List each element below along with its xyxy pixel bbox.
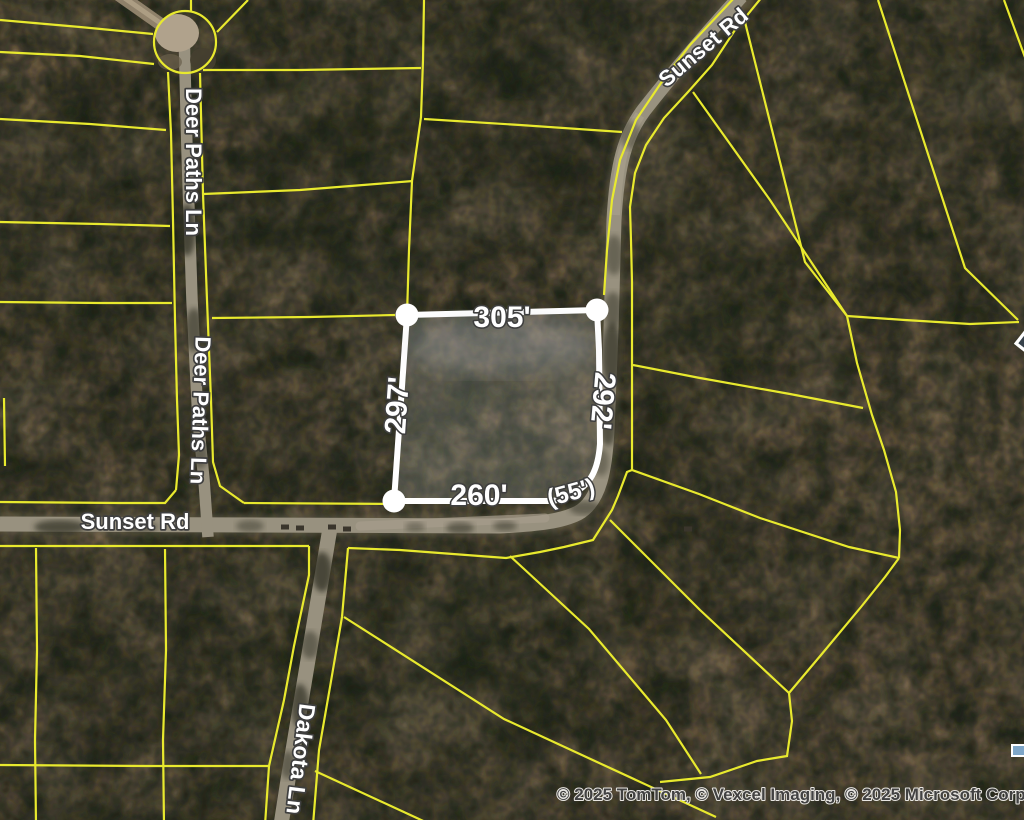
svg-text:297': 297'	[379, 376, 416, 435]
svg-text:Deer Paths Ln: Deer Paths Ln	[185, 336, 215, 485]
svg-text:292': 292'	[584, 371, 622, 431]
svg-text:Sunset Rd: Sunset Rd	[81, 509, 190, 534]
svg-text:260': 260'	[450, 479, 507, 512]
svg-text:Deer Paths Ln: Deer Paths Ln	[181, 88, 206, 236]
svg-text:© 2025 TomTom, © Vexcel Imagin: © 2025 TomTom, © Vexcel Imaging, © 2025 …	[557, 785, 1024, 804]
svg-text:305': 305'	[473, 301, 530, 334]
